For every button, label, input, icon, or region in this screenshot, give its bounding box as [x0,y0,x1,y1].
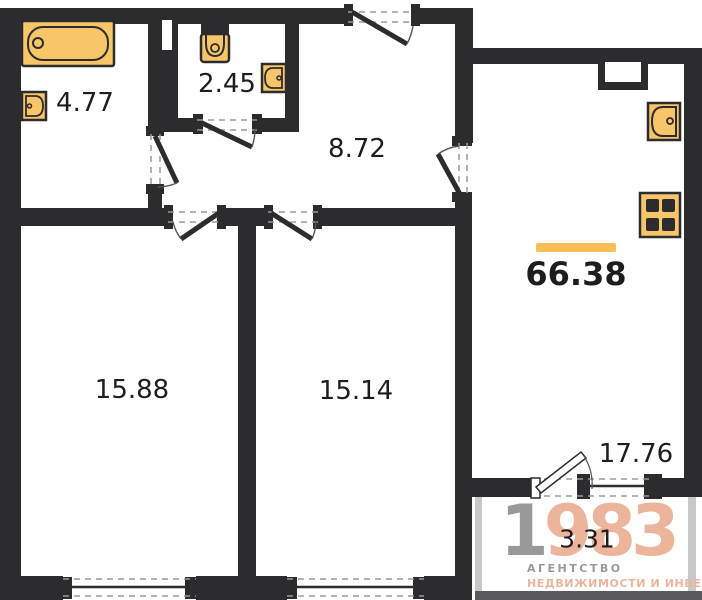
wall-bath-right-upper [148,24,162,133]
wall-rooms-divider [238,208,256,600]
door-jamb [146,184,164,194]
entrance-door-icon [352,12,413,44]
total-area-underline [536,243,616,252]
room-middle-door-icon [271,213,316,239]
area-label-toilet: 2.45 [198,69,256,99]
agency-tagline: АГЕНТСТВО НЕДВИЖИМОСТИ И ИНВЕСТИЦИЙ [527,562,702,590]
wall-hall-right-lower [455,197,472,600]
stove-icon [640,193,680,237]
toilet-sink-icon [262,64,286,92]
door-jamb [164,205,173,229]
bathroom-sink-icon [22,92,46,120]
area-label-kitchen-living: 17.76 [599,439,673,469]
wall-mid-c [318,208,457,226]
area-label-balcony: 3.31 [559,525,615,554]
kitchen-sink-icon [648,103,680,140]
wall-toilet-bottom-right [256,118,299,132]
door-jamb [193,114,203,134]
floor-plan: 1983 АГЕНТСТВО НЕДВИЖИМОСТИ И ИНВЕСТИЦИЙ… [0,0,702,600]
bathroom-door-icon [155,136,177,187]
wall-hall-right-upper [455,8,473,143]
door-jamb [217,205,226,229]
area-label-total: 66.38 [525,255,626,293]
wall-mid-a [0,208,168,226]
wall-bottom-b [196,576,287,600]
area-label-bathroom: 4.77 [56,88,114,118]
wall-left-outer [0,8,21,600]
wall-toilet-niche [162,20,172,50]
area-label-room-left: 15.88 [95,375,169,405]
agency-tagline-line2: НЕДВИЖИМОСТИ И ИНВЕСТИЦИЙ [527,577,702,590]
wall-bottom-c [424,576,472,600]
living-door-icon [438,146,461,196]
wall-right-outer [684,48,702,497]
door-jamb [452,136,472,146]
balcony-border-left [475,497,482,595]
agency-tagline-line1: АГЕНТСТВО [527,562,702,575]
bathtub-icon [22,21,114,66]
door-jamb [146,126,164,136]
wall-vent-notch-inner [605,62,641,82]
toilet-icon [201,18,229,62]
door-jamb [313,205,322,229]
area-label-room-middle: 15.14 [319,376,393,406]
wall-top-living [473,48,702,64]
toilet-door-icon [202,123,255,147]
door-jamb [411,4,420,26]
door-jamb [252,114,262,134]
wall-bottom-a [0,576,63,600]
logo-digit-1: 1 [500,490,544,572]
room-left-door-icon [173,213,219,239]
area-label-hallway: 8.72 [328,134,386,164]
door-jamb [264,205,273,229]
